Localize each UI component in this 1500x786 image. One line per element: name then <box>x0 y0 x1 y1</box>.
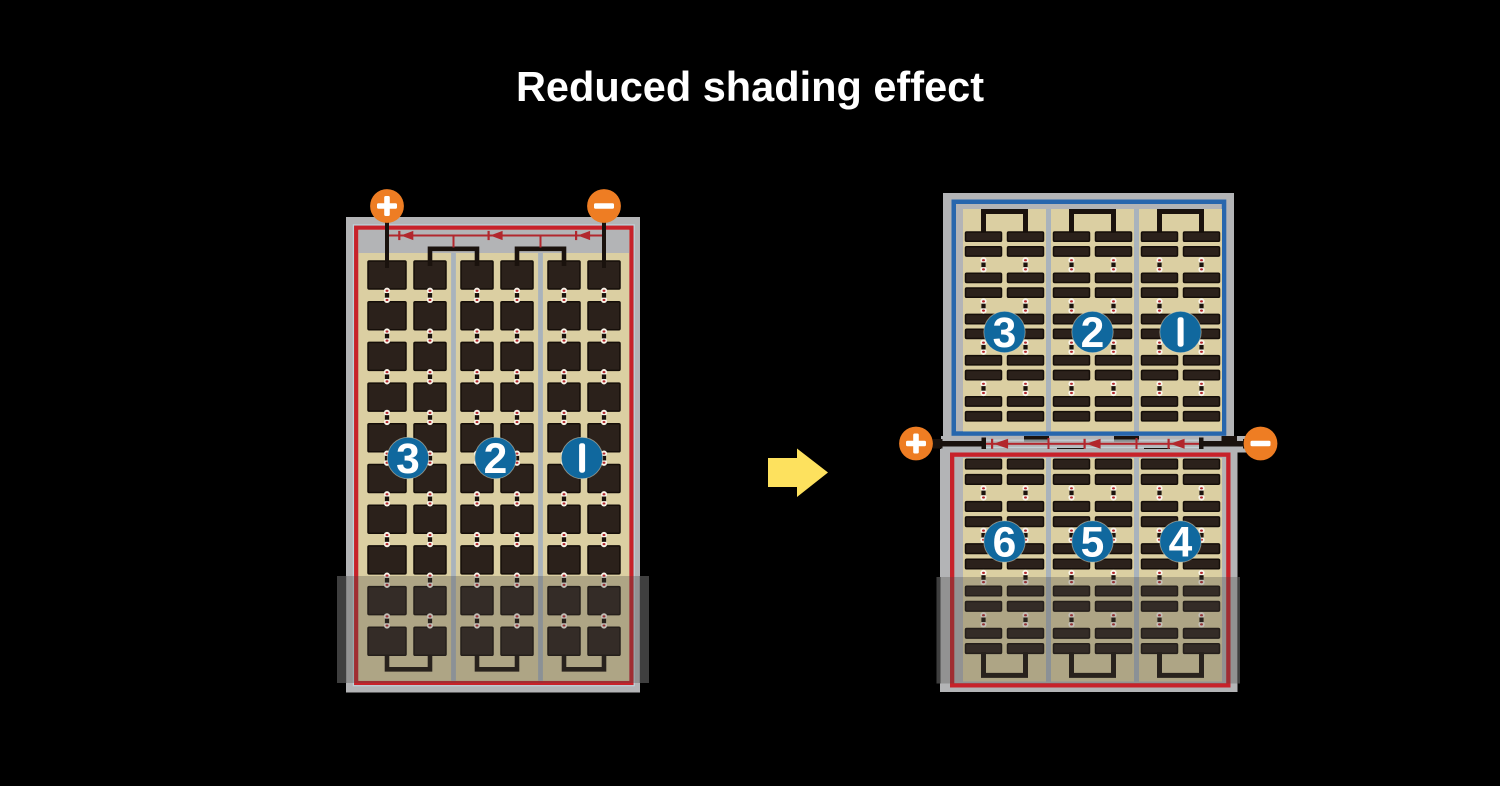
svg-text:6: 6 <box>993 520 1017 567</box>
svg-text:3: 3 <box>993 310 1017 357</box>
svg-text:2: 2 <box>1081 310 1105 357</box>
svg-text:4: 4 <box>1169 520 1193 567</box>
svg-text:Reduced shading effect: Reduced shading effect <box>516 63 984 110</box>
svg-text:5: 5 <box>1081 520 1105 567</box>
svg-text:3: 3 <box>396 436 420 483</box>
svg-text:2: 2 <box>484 436 508 483</box>
